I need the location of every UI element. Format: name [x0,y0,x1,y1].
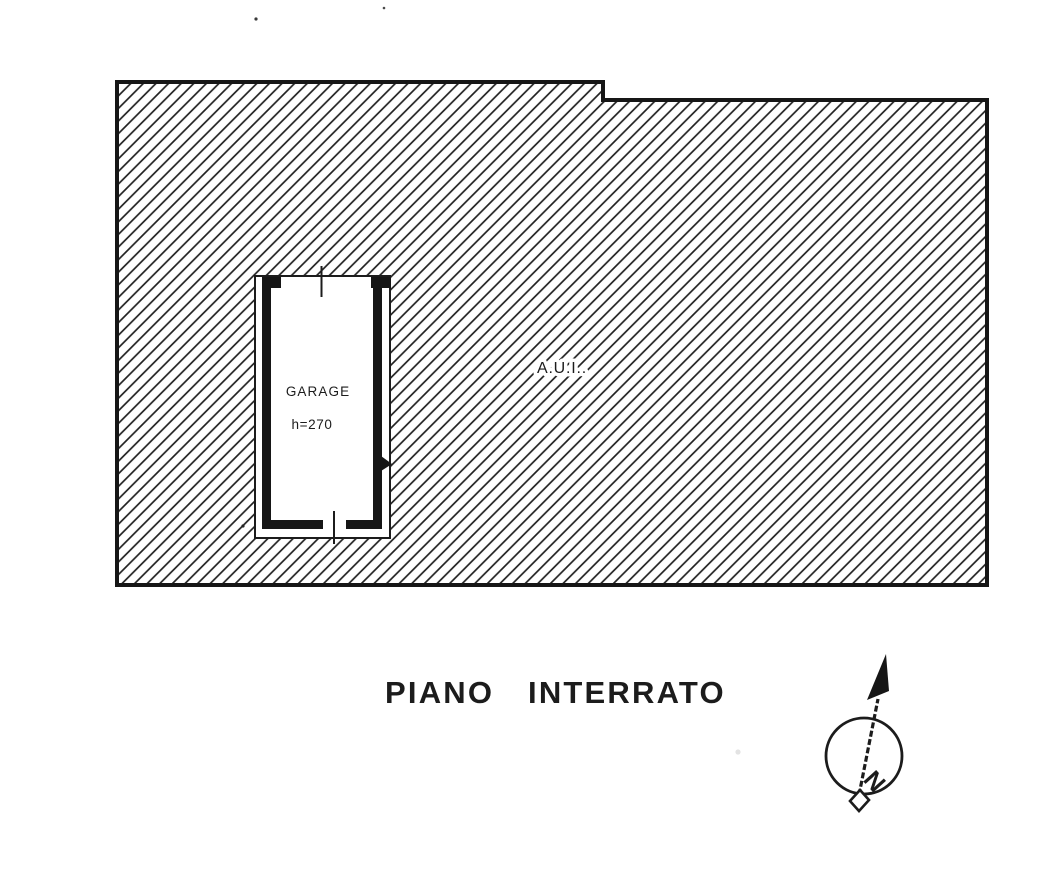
speck [383,7,386,10]
floor-plan-sheet: GARAGE h=270 A.U.I.. PIANO INTERRATO N [0,0,1050,876]
floor-plan-drawing: GARAGE h=270 A.U.I.. PIANO INTERRATO N [0,0,1050,876]
garage-wall-left [262,277,271,529]
garage-room: GARAGE h=270 [255,266,392,544]
garage-height-label: h=270 [292,417,333,432]
garage-label: GARAGE [286,384,350,399]
basement-outline [117,82,987,585]
caption-word-interrato: INTERRATO [528,675,726,710]
garage-outer-boundary [255,276,390,538]
garage-wall-bottom-left [262,520,323,529]
caption-word-piano: PIANO [385,675,494,710]
area-label-aui: A.U.I.. [537,360,587,377]
garage-wall-right [373,277,382,529]
north-compass: N [826,654,902,811]
garage-jamb-left [262,277,281,288]
speck [735,749,740,754]
garage-jamb-right [371,277,391,288]
speck [254,17,257,20]
garage-wall-bottom-right [346,520,382,529]
north-arrowhead-icon [867,654,889,700]
plan-caption: PIANO INTERRATO [385,675,726,710]
